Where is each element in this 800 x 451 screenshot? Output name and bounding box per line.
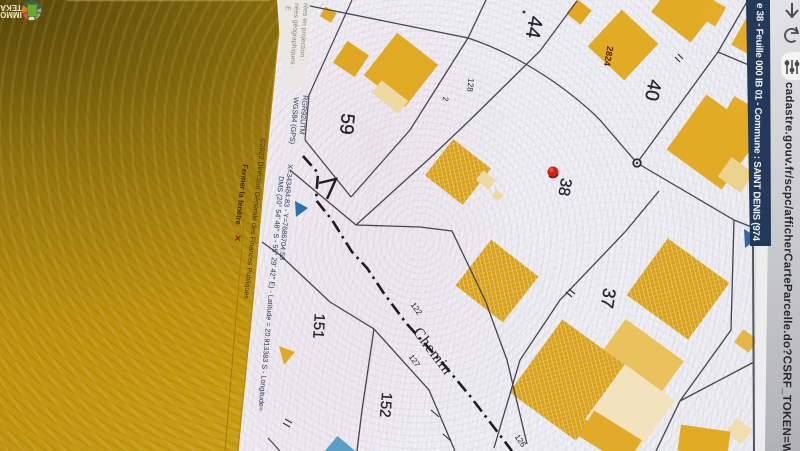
svg-text:40: 40	[640, 78, 665, 103]
svg-text:2: 2	[441, 96, 450, 102]
svg-text:126: 126	[513, 433, 528, 450]
svg-text:38: 38	[554, 177, 574, 198]
svg-text:IMMO: IMMO	[0, 10, 22, 19]
svg-text:✕: ✕	[232, 234, 243, 243]
svg-text:37: 37	[597, 287, 620, 310]
svg-text:127: 127	[407, 353, 422, 370]
svg-text:128: 128	[465, 78, 475, 93]
svg-text:59: 59	[335, 113, 358, 136]
svg-text:122: 122	[409, 301, 424, 318]
svg-text:Chemin: Chemin	[409, 324, 456, 378]
svg-text:152: 152	[376, 392, 395, 418]
svg-text:151: 151	[309, 313, 328, 339]
svg-text:WGS84 (GPS): WGS84 (GPS)	[288, 97, 301, 145]
svg-text:44: 44	[521, 14, 547, 40]
svg-text:Fermer la fenêtre: Fermer la fenêtre	[234, 164, 250, 226]
